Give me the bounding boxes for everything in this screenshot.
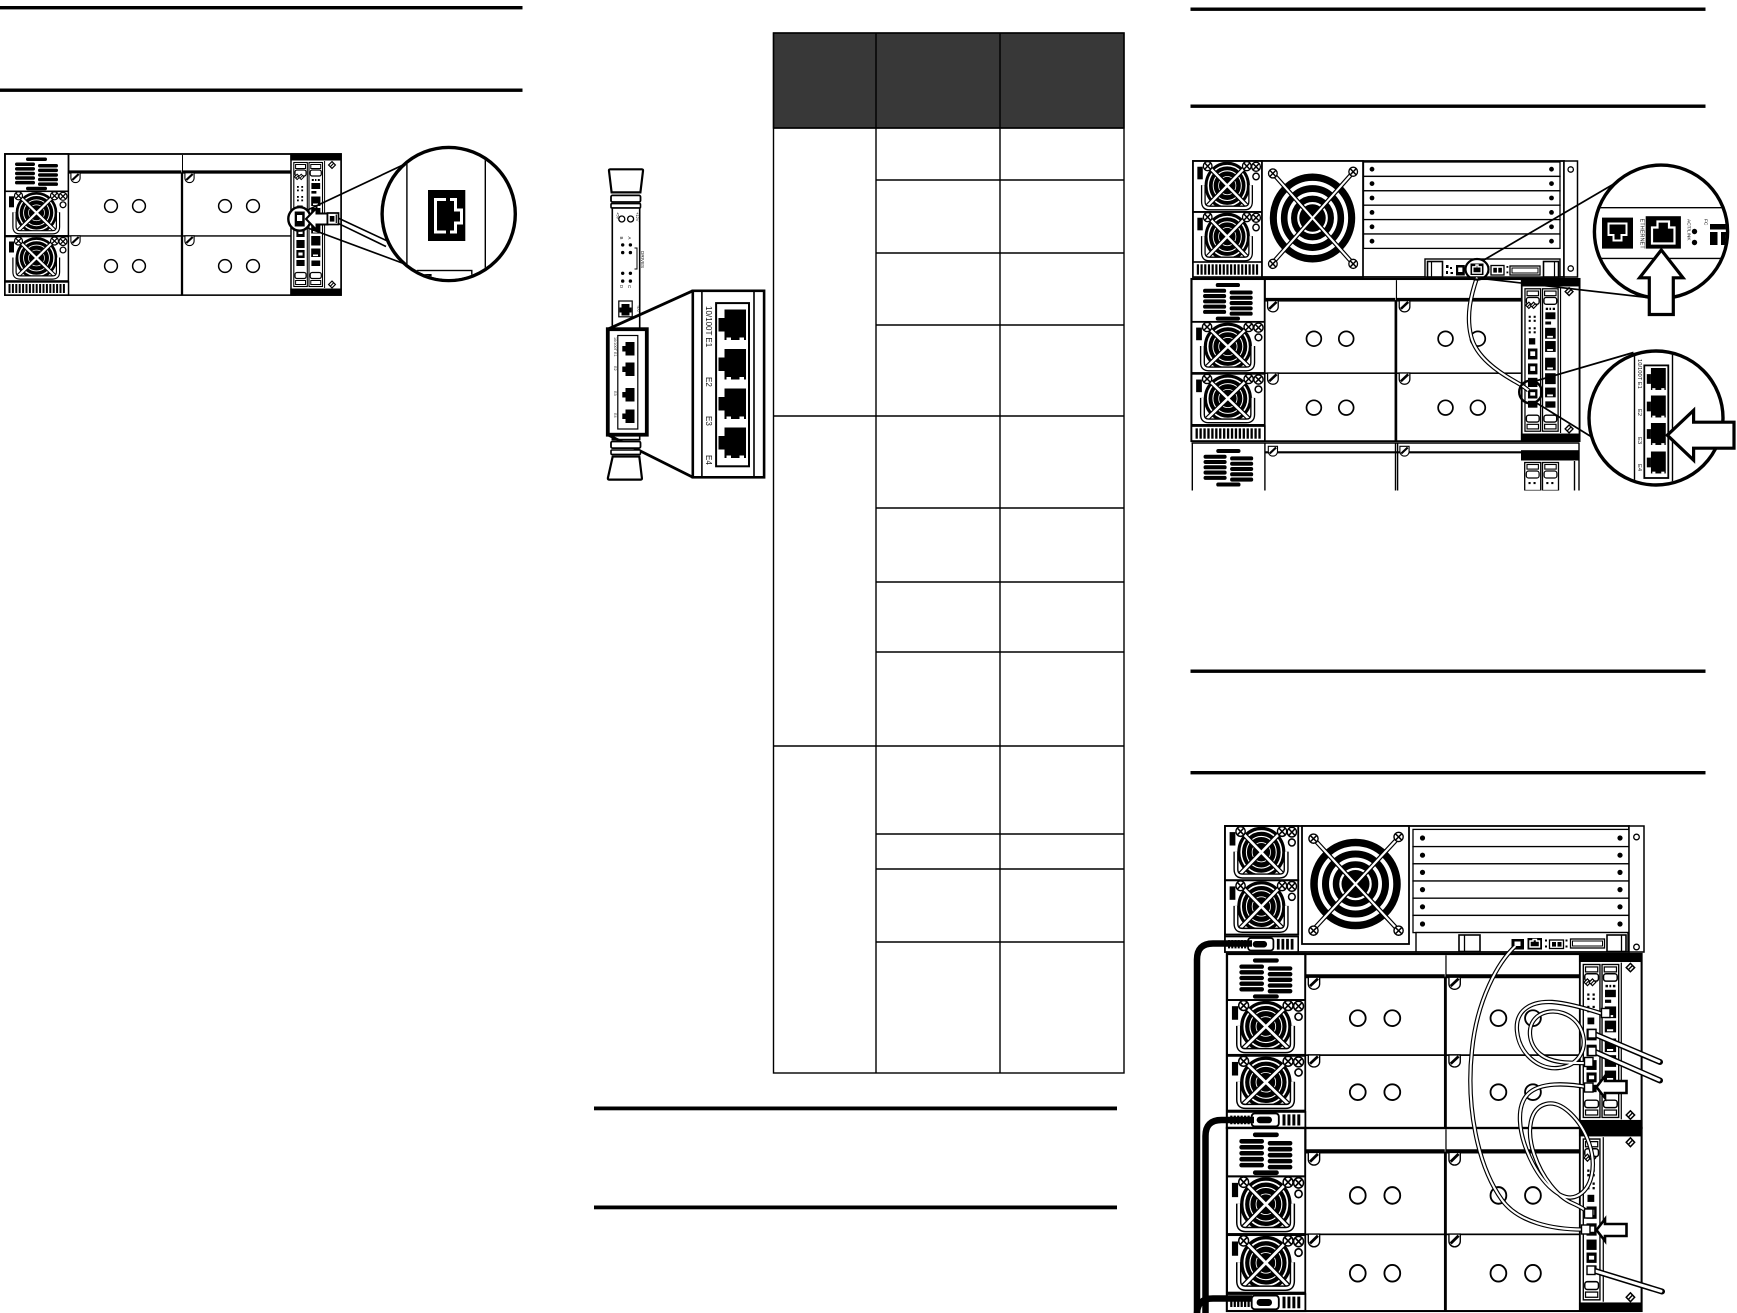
svg-text:I2C: I2C (637, 306, 642, 313)
svg-text:B: B (619, 237, 624, 240)
svg-text:ETHERNET: ETHERNET (1639, 219, 1645, 250)
svg-text:A: A (627, 237, 632, 240)
svg-text:DRIVES: DRIVES (640, 251, 645, 268)
svg-text:E3: E3 (704, 416, 713, 426)
svg-text:FC: FC (1703, 219, 1709, 226)
svg-text:E4: E4 (613, 413, 617, 418)
svg-text:E2: E2 (613, 366, 617, 371)
svg-text:E2: E2 (1636, 409, 1642, 416)
svg-text:+12V: +12V (635, 212, 640, 222)
svg-text:D: D (619, 285, 624, 288)
svg-text:E4: E4 (704, 455, 713, 465)
svg-text:ACT/LINK: ACT/LINK (1686, 219, 1692, 241)
svg-text:E4: E4 (1636, 464, 1642, 472)
svg-text:C: C (627, 285, 632, 288)
svg-text:10/100T E1: 10/100T E1 (1636, 359, 1642, 389)
svg-text:E3: E3 (1636, 437, 1642, 444)
svg-text:10/100T E1: 10/100T E1 (704, 306, 713, 348)
svg-text:E3: E3 (613, 391, 617, 396)
svg-text:+5V: +5V (616, 212, 621, 220)
svg-text:E2: E2 (704, 377, 713, 387)
svg-text:10/100T E1: 10/100T E1 (613, 337, 617, 357)
